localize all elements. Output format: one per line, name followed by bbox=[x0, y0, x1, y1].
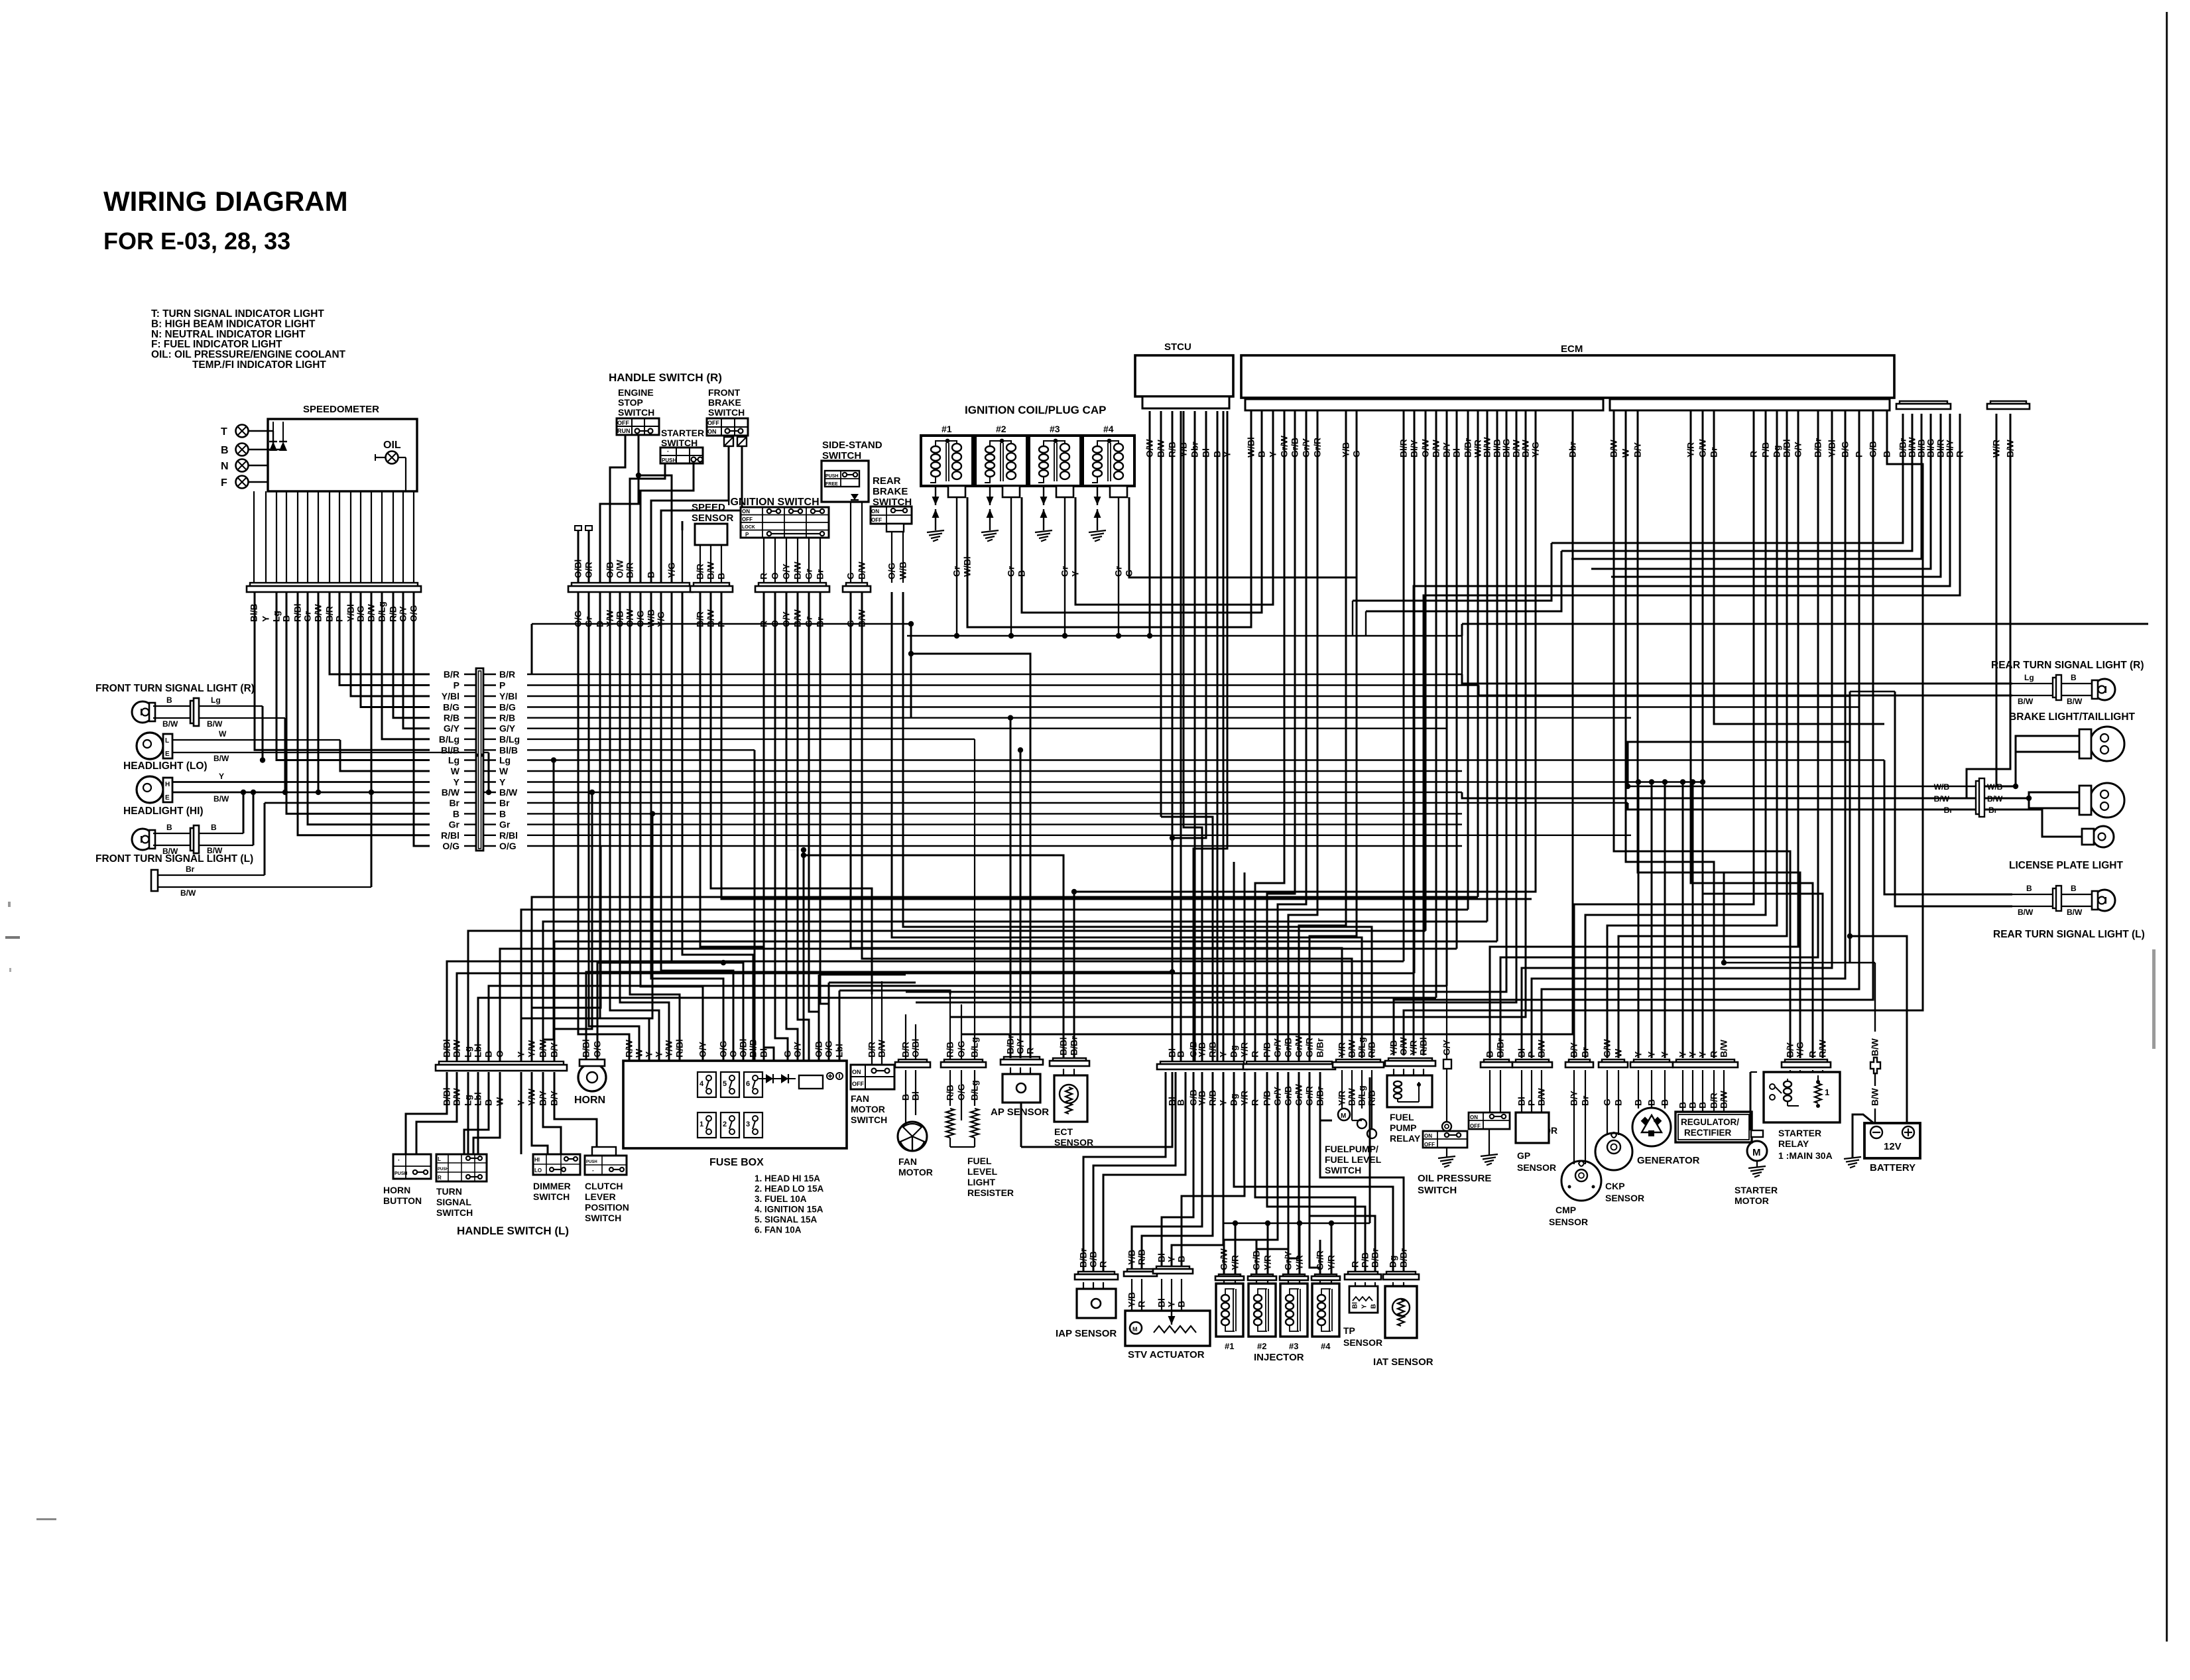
svg-text:FOR E-03, 28, 33: FOR E-03, 28, 33 bbox=[103, 227, 290, 255]
svg-text:F: F bbox=[221, 477, 227, 489]
svg-text:PUSH: PUSH bbox=[586, 1160, 597, 1164]
svg-text:L: L bbox=[438, 1156, 441, 1162]
svg-text:B/W: B/W bbox=[207, 719, 223, 729]
svg-text:1 :MAIN 30A: 1 :MAIN 30A bbox=[1778, 1150, 1833, 1161]
svg-text:R/Bl: R/Bl bbox=[499, 830, 518, 841]
svg-text:GENERATOR: GENERATOR bbox=[1637, 1155, 1700, 1166]
svg-text:M: M bbox=[1341, 1112, 1346, 1120]
svg-text:O/G: O/G bbox=[887, 563, 897, 579]
svg-text:O/G: O/G bbox=[499, 841, 517, 851]
svg-text:Gr: Gr bbox=[1060, 566, 1070, 577]
svg-text:TURN: TURN bbox=[436, 1186, 462, 1197]
svg-text:B: B bbox=[211, 823, 217, 832]
svg-text:Bl: Bl bbox=[1352, 1302, 1359, 1309]
svg-text:B/W: B/W bbox=[1870, 1087, 1880, 1106]
svg-text:REGULATOR/: REGULATOR/ bbox=[1681, 1117, 1739, 1127]
svg-text:B/W: B/W bbox=[499, 787, 518, 798]
svg-text:P: P bbox=[454, 680, 459, 691]
svg-text:LEVEL: LEVEL bbox=[967, 1166, 998, 1177]
svg-text:Br: Br bbox=[499, 798, 510, 808]
svg-text:BRAKE LIGHT/TAILLIGHT: BRAKE LIGHT/TAILLIGHT bbox=[2009, 711, 2136, 723]
svg-text:R/B: R/B bbox=[499, 713, 515, 723]
svg-text:B: B bbox=[1660, 1099, 1670, 1106]
svg-text:OFF: OFF bbox=[707, 420, 719, 426]
svg-text:FUEL: FUEL bbox=[967, 1156, 992, 1166]
svg-text:STARTER: STARTER bbox=[1734, 1185, 1778, 1195]
svg-text:MOTOR: MOTOR bbox=[1734, 1195, 1769, 1206]
svg-text:B/Lg: B/Lg bbox=[439, 734, 459, 745]
svg-text:R/B: R/B bbox=[444, 713, 459, 723]
svg-text:SENSOR: SENSOR bbox=[1549, 1217, 1588, 1227]
svg-text:L: L bbox=[165, 737, 169, 745]
svg-text:Bl: Bl bbox=[1157, 1298, 1167, 1307]
svg-text:N: N bbox=[221, 461, 229, 472]
svg-text:B: B bbox=[1634, 1099, 1644, 1106]
svg-text:B: B bbox=[2071, 884, 2077, 893]
svg-text:B/R: B/R bbox=[444, 669, 459, 680]
svg-text:B: B bbox=[901, 1094, 911, 1101]
svg-text:GP: GP bbox=[1517, 1150, 1530, 1161]
svg-text:ON: ON bbox=[852, 1069, 861, 1075]
svg-text:·: · bbox=[398, 1157, 400, 1164]
svg-text:B/W: B/W bbox=[706, 561, 716, 579]
svg-text:SWITCH: SWITCH bbox=[708, 407, 745, 418]
svg-text:BATTERY: BATTERY bbox=[1870, 1162, 1916, 1173]
svg-text:B: B bbox=[166, 695, 172, 705]
svg-text:B: B bbox=[1177, 1301, 1187, 1307]
svg-text:SENSOR: SENSOR bbox=[1343, 1337, 1382, 1348]
svg-text:FAN: FAN bbox=[851, 1093, 869, 1104]
svg-text:B: B bbox=[453, 808, 459, 819]
svg-text:STARTER: STARTER bbox=[1778, 1128, 1821, 1138]
svg-text:E: E bbox=[165, 794, 170, 802]
svg-text:RUN: RUN bbox=[617, 428, 631, 434]
svg-text:SENSOR: SENSOR bbox=[1517, 1162, 1556, 1173]
svg-text:HEADLIGHT (HI): HEADLIGHT (HI) bbox=[123, 806, 204, 817]
svg-text:B/Lg: B/Lg bbox=[970, 1080, 980, 1101]
svg-text:R: R bbox=[759, 573, 769, 579]
svg-text:#3: #3 bbox=[1050, 424, 1060, 434]
svg-text:M: M bbox=[1132, 1326, 1138, 1333]
svg-text:SWITCH: SWITCH bbox=[585, 1213, 621, 1223]
svg-text:PUSH: PUSH bbox=[438, 1168, 449, 1171]
svg-text:FRONT TURN SIGNAL LIGHT (R): FRONT TURN SIGNAL LIGHT (R) bbox=[95, 683, 255, 694]
svg-text:O/G: O/G bbox=[442, 841, 459, 851]
svg-text:5. SIGNAL 15A: 5. SIGNAL 15A bbox=[755, 1215, 818, 1225]
svg-text:B: B bbox=[166, 823, 172, 832]
svg-text:REAR: REAR bbox=[873, 475, 901, 487]
svg-text:#1: #1 bbox=[1225, 1341, 1234, 1351]
svg-text:Y: Y bbox=[1167, 1301, 1177, 1307]
svg-text:RESISTER: RESISTER bbox=[967, 1187, 1014, 1198]
svg-text:BRAKE: BRAKE bbox=[873, 486, 908, 497]
svg-text:RECTIFIER: RECTIFIER bbox=[1684, 1128, 1732, 1138]
svg-text:#4: #4 bbox=[1103, 424, 1114, 434]
svg-text:OIL PRESSURE: OIL PRESSURE bbox=[1418, 1173, 1491, 1184]
svg-text:HORN: HORN bbox=[574, 1095, 605, 1106]
svg-text:FRONT TURN SIGNAL LIGHT (L): FRONT TURN SIGNAL LIGHT (L) bbox=[95, 853, 253, 865]
svg-text:TP: TP bbox=[1343, 1325, 1355, 1336]
svg-text:#4: #4 bbox=[1321, 1341, 1331, 1351]
svg-text:#2: #2 bbox=[996, 424, 1006, 434]
svg-text:B: B bbox=[1678, 1102, 1688, 1109]
svg-text:SPEED: SPEED bbox=[692, 502, 725, 513]
svg-text:Bl: Bl bbox=[911, 1091, 921, 1101]
svg-text:2. HEAD LO 15A: 2. HEAD LO 15A bbox=[755, 1184, 824, 1194]
svg-text:HANDLE SWITCH (R): HANDLE SWITCH (R) bbox=[609, 371, 722, 384]
svg-text:Bl/B: Bl/B bbox=[441, 745, 459, 755]
svg-text:OFF: OFF bbox=[1470, 1123, 1481, 1129]
svg-text:WIRING DIAGRAM: WIRING DIAGRAM bbox=[103, 186, 348, 217]
svg-text:4: 4 bbox=[700, 1080, 704, 1088]
svg-text:TEMP./FI INDICATOR LIGHT: TEMP./FI INDICATOR LIGHT bbox=[192, 359, 326, 371]
svg-text:B/W: B/W bbox=[1719, 1090, 1729, 1109]
svg-text:SENSOR: SENSOR bbox=[1605, 1193, 1644, 1203]
svg-text:CKP: CKP bbox=[1605, 1181, 1625, 1191]
svg-text:PUSH: PUSH bbox=[825, 474, 838, 479]
svg-text:CLUTCH: CLUTCH bbox=[585, 1181, 623, 1191]
svg-text:INJECTOR: INJECTOR bbox=[1254, 1352, 1304, 1363]
svg-text:FRONT: FRONT bbox=[708, 387, 741, 398]
svg-text:O/R: O/R bbox=[584, 562, 594, 578]
svg-text:B/W: B/W bbox=[793, 561, 803, 579]
svg-text:HORN: HORN bbox=[383, 1185, 410, 1195]
svg-text:B/R: B/R bbox=[901, 1042, 911, 1057]
svg-text:SWITCH: SWITCH bbox=[1325, 1165, 1361, 1175]
svg-text:W/B: W/B bbox=[898, 562, 908, 579]
svg-text:POSITION: POSITION bbox=[585, 1202, 629, 1213]
svg-text:Y/G: Y/G bbox=[667, 562, 677, 578]
svg-text:CMP: CMP bbox=[1555, 1205, 1576, 1215]
svg-text:R/Bl: R/Bl bbox=[441, 830, 459, 841]
svg-text:4. IGNITION 15A: 4. IGNITION 15A bbox=[755, 1205, 823, 1215]
svg-text:Lg: Lg bbox=[499, 755, 511, 766]
svg-text:B: B bbox=[1370, 1304, 1378, 1309]
svg-text:B: B bbox=[646, 571, 656, 578]
svg-text:LOCK: LOCK bbox=[742, 525, 755, 530]
svg-text:B/W: B/W bbox=[2067, 697, 2083, 706]
svg-text:B: B bbox=[2026, 884, 2032, 893]
svg-text:#3: #3 bbox=[1289, 1341, 1298, 1351]
svg-text:B/R: B/R bbox=[1709, 1093, 1719, 1109]
svg-text:SENSOR: SENSOR bbox=[692, 512, 734, 524]
svg-text:12V: 12V bbox=[1884, 1141, 1902, 1152]
svg-text:O/Y: O/Y bbox=[782, 564, 792, 579]
svg-text:Gr: Gr bbox=[804, 568, 814, 579]
svg-text:SPEEDOMETER: SPEEDOMETER bbox=[303, 404, 379, 415]
svg-text:B/W: B/W bbox=[213, 754, 229, 763]
svg-text:Br: Br bbox=[186, 865, 195, 874]
svg-text:P: P bbox=[499, 680, 505, 691]
svg-text:OFF: OFF bbox=[742, 516, 753, 522]
svg-text:ON: ON bbox=[1470, 1114, 1478, 1120]
svg-text:E: E bbox=[165, 750, 170, 758]
svg-text:·: · bbox=[592, 1168, 594, 1175]
svg-text:Bl/B: Bl/B bbox=[499, 745, 518, 755]
svg-text:Y/Bl: Y/Bl bbox=[442, 691, 459, 701]
svg-text:IAT SENSOR: IAT SENSOR bbox=[1373, 1356, 1433, 1368]
svg-text:ECM: ECM bbox=[1561, 343, 1583, 355]
svg-text:B/W: B/W bbox=[2018, 697, 2034, 706]
svg-text:R: R bbox=[1137, 1301, 1147, 1307]
svg-text:OFF: OFF bbox=[617, 420, 629, 426]
svg-text:SWITCH: SWITCH bbox=[436, 1207, 473, 1218]
svg-text:6. FAN 10A: 6. FAN 10A bbox=[755, 1225, 802, 1235]
svg-text:HANDLE SWITCH (L): HANDLE SWITCH (L) bbox=[457, 1225, 569, 1237]
svg-text:Gr: Gr bbox=[499, 819, 511, 830]
svg-text:P: P bbox=[745, 532, 749, 538]
svg-text:G/Y: G/Y bbox=[444, 723, 460, 734]
svg-text:Gr: Gr bbox=[449, 819, 460, 830]
svg-text:B: B bbox=[717, 573, 727, 579]
svg-text:Lg: Lg bbox=[448, 755, 459, 766]
svg-text:B/R: B/R bbox=[499, 669, 515, 680]
svg-text:B/G: B/G bbox=[443, 702, 459, 713]
svg-text:1: 1 bbox=[700, 1120, 703, 1128]
svg-text:ECT: ECT bbox=[1054, 1126, 1073, 1137]
svg-text:PUSH: PUSH bbox=[662, 457, 676, 463]
svg-text:LIGHT: LIGHT bbox=[967, 1177, 995, 1187]
svg-text:B: B bbox=[499, 808, 506, 819]
svg-text:STARTER: STARTER bbox=[661, 428, 704, 438]
svg-text:O/Bl: O/Bl bbox=[574, 560, 583, 578]
svg-text:Y: Y bbox=[499, 777, 506, 788]
svg-text:B/Lg: B/Lg bbox=[499, 734, 520, 745]
svg-text:OFF: OFF bbox=[1424, 1142, 1435, 1148]
svg-text:RELAY: RELAY bbox=[1778, 1138, 1809, 1149]
svg-text:Y: Y bbox=[454, 777, 460, 788]
svg-text:FUSE BOX: FUSE BOX bbox=[709, 1157, 764, 1168]
svg-text:3: 3 bbox=[746, 1120, 750, 1128]
svg-text:LO: LO bbox=[534, 1168, 542, 1173]
svg-text:B: B bbox=[1614, 1099, 1624, 1106]
svg-text:O/Bl: O/Bl bbox=[911, 1039, 921, 1057]
svg-text:PUSH: PUSH bbox=[395, 1171, 407, 1176]
svg-text:B/W: B/W bbox=[162, 719, 178, 729]
svg-text:W: W bbox=[499, 766, 509, 776]
svg-text:G: G bbox=[1603, 1099, 1612, 1106]
svg-text:BUTTON: BUTTON bbox=[383, 1195, 422, 1206]
svg-text:STCU: STCU bbox=[1164, 341, 1191, 353]
svg-text:REAR TURN SIGNAL LIGHT (R): REAR TURN SIGNAL LIGHT (R) bbox=[1991, 660, 2144, 671]
svg-text:Br: Br bbox=[816, 569, 825, 579]
svg-text:#2: #2 bbox=[1257, 1341, 1266, 1351]
svg-text:SIGNAL: SIGNAL bbox=[436, 1197, 471, 1207]
svg-text:ENGINE: ENGINE bbox=[618, 387, 654, 398]
svg-text:6: 6 bbox=[746, 1080, 750, 1088]
svg-text:ON: ON bbox=[871, 509, 879, 514]
svg-text:SWITCH: SWITCH bbox=[533, 1191, 570, 1202]
svg-text:G: G bbox=[1352, 450, 1362, 457]
svg-text:REAR TURN SIGNAL LIGHT (L): REAR TURN SIGNAL LIGHT (L) bbox=[1993, 929, 2145, 940]
svg-text:SIDE-STAND: SIDE-STAND bbox=[822, 440, 882, 451]
svg-text:SWITCH: SWITCH bbox=[851, 1114, 887, 1125]
svg-text:OIL: OIL bbox=[383, 440, 401, 451]
svg-text:DIMMER: DIMMER bbox=[533, 1181, 571, 1191]
svg-text:B/R: B/R bbox=[696, 564, 705, 579]
svg-text:T: T bbox=[221, 426, 227, 438]
svg-text:R/B: R/B bbox=[945, 1085, 955, 1101]
svg-text:B: B bbox=[1647, 1099, 1657, 1106]
svg-text:MOTOR: MOTOR bbox=[851, 1104, 885, 1114]
svg-text:W: W bbox=[219, 729, 227, 739]
svg-text:MOTOR: MOTOR bbox=[898, 1167, 933, 1177]
svg-text:FUEL: FUEL bbox=[1390, 1112, 1414, 1122]
svg-text:1. HEAD HI 15A: 1. HEAD HI 15A bbox=[755, 1173, 820, 1183]
svg-text:Y: Y bbox=[261, 616, 271, 622]
svg-text:O/B: O/B bbox=[605, 562, 615, 578]
svg-text:B: B bbox=[1688, 1102, 1698, 1109]
svg-text:W: W bbox=[451, 766, 460, 776]
svg-text:B/W: B/W bbox=[1870, 1038, 1880, 1056]
svg-text:FAN: FAN bbox=[898, 1156, 917, 1167]
svg-text:Lg: Lg bbox=[211, 695, 221, 705]
svg-text:Y: Y bbox=[1361, 1304, 1369, 1309]
svg-text:STV ACTUATOR: STV ACTUATOR bbox=[1128, 1349, 1205, 1360]
svg-text:1: 1 bbox=[1825, 1087, 1829, 1097]
svg-text:Lg: Lg bbox=[2024, 673, 2034, 682]
svg-text:SWITCH: SWITCH bbox=[1418, 1185, 1457, 1196]
svg-text:ON: ON bbox=[707, 428, 717, 435]
svg-text:Y/B: Y/B bbox=[1127, 1292, 1137, 1307]
svg-text:RELAY: RELAY bbox=[1390, 1133, 1421, 1144]
svg-text:LEVER: LEVER bbox=[585, 1191, 616, 1202]
svg-text:B: B bbox=[2071, 673, 2077, 682]
svg-text:AP SENSOR: AP SENSOR bbox=[991, 1107, 1049, 1118]
svg-text:ON: ON bbox=[742, 509, 750, 514]
svg-text:B: B bbox=[1698, 1102, 1708, 1109]
svg-text:2: 2 bbox=[723, 1120, 727, 1128]
svg-text:G: G bbox=[846, 572, 856, 579]
svg-text:SWITCH: SWITCH bbox=[618, 407, 654, 418]
svg-text:O/G: O/G bbox=[957, 1084, 967, 1101]
svg-text:R: R bbox=[438, 1175, 442, 1181]
svg-text:3. FUEL 10A: 3. FUEL 10A bbox=[755, 1194, 807, 1204]
svg-text:Y/Bl: Y/Bl bbox=[499, 691, 517, 701]
svg-text:B/W: B/W bbox=[442, 787, 460, 798]
svg-text:PUMP: PUMP bbox=[1390, 1122, 1416, 1133]
svg-text:B/W: B/W bbox=[857, 561, 867, 579]
svg-text:H: H bbox=[165, 781, 170, 788]
svg-text:B/R: B/R bbox=[625, 562, 635, 578]
svg-text:IGNITION COIL/PLUG CAP: IGNITION COIL/PLUG CAP bbox=[965, 404, 1106, 416]
svg-text:B/W: B/W bbox=[1719, 1039, 1729, 1057]
svg-text:Y: Y bbox=[219, 772, 224, 781]
svg-text:Gr: Gr bbox=[952, 566, 962, 577]
svg-text:HI: HI bbox=[534, 1157, 540, 1163]
svg-text:B/W: B/W bbox=[180, 888, 196, 898]
svg-text:ON: ON bbox=[1424, 1133, 1432, 1139]
svg-text:5: 5 bbox=[723, 1080, 727, 1088]
svg-text:·: · bbox=[667, 448, 669, 455]
svg-text:STOP: STOP bbox=[618, 397, 643, 408]
svg-text:FUEL LEVEL: FUEL LEVEL bbox=[1325, 1154, 1382, 1165]
svg-text:M: M bbox=[1752, 1147, 1761, 1158]
svg-text:O/W: O/W bbox=[615, 559, 625, 578]
svg-text:LICENSE PLATE LIGHT: LICENSE PLATE LIGHT bbox=[2009, 860, 2123, 871]
svg-text:Gr: Gr bbox=[1006, 566, 1016, 577]
svg-text:IGNITION SWITCH: IGNITION SWITCH bbox=[727, 497, 820, 508]
svg-text:G/Y: G/Y bbox=[499, 723, 516, 734]
svg-text:B/W: B/W bbox=[2018, 908, 2034, 917]
svg-text:HEADLIGHT (LO): HEADLIGHT (LO) bbox=[123, 760, 208, 772]
svg-text:FREE: FREE bbox=[825, 482, 838, 487]
svg-text:B: B bbox=[1176, 1099, 1186, 1106]
svg-text:BRAKE: BRAKE bbox=[708, 397, 741, 408]
svg-text:O: O bbox=[770, 572, 780, 579]
svg-text:OFF: OFF bbox=[852, 1081, 864, 1087]
svg-text:Gr: Gr bbox=[1114, 566, 1124, 577]
svg-text:B: B bbox=[221, 445, 229, 456]
svg-text:B/G: B/G bbox=[499, 702, 516, 713]
svg-text:OFF: OFF bbox=[871, 517, 882, 523]
svg-text:#1: #1 bbox=[942, 424, 952, 434]
svg-text:Br: Br bbox=[449, 798, 459, 808]
svg-text:B/W: B/W bbox=[2067, 908, 2083, 917]
svg-text:B/Br: B/Br bbox=[1315, 1038, 1325, 1057]
svg-text:IAP SENSOR: IAP SENSOR bbox=[1056, 1328, 1117, 1339]
svg-text:B/W: B/W bbox=[213, 794, 229, 804]
